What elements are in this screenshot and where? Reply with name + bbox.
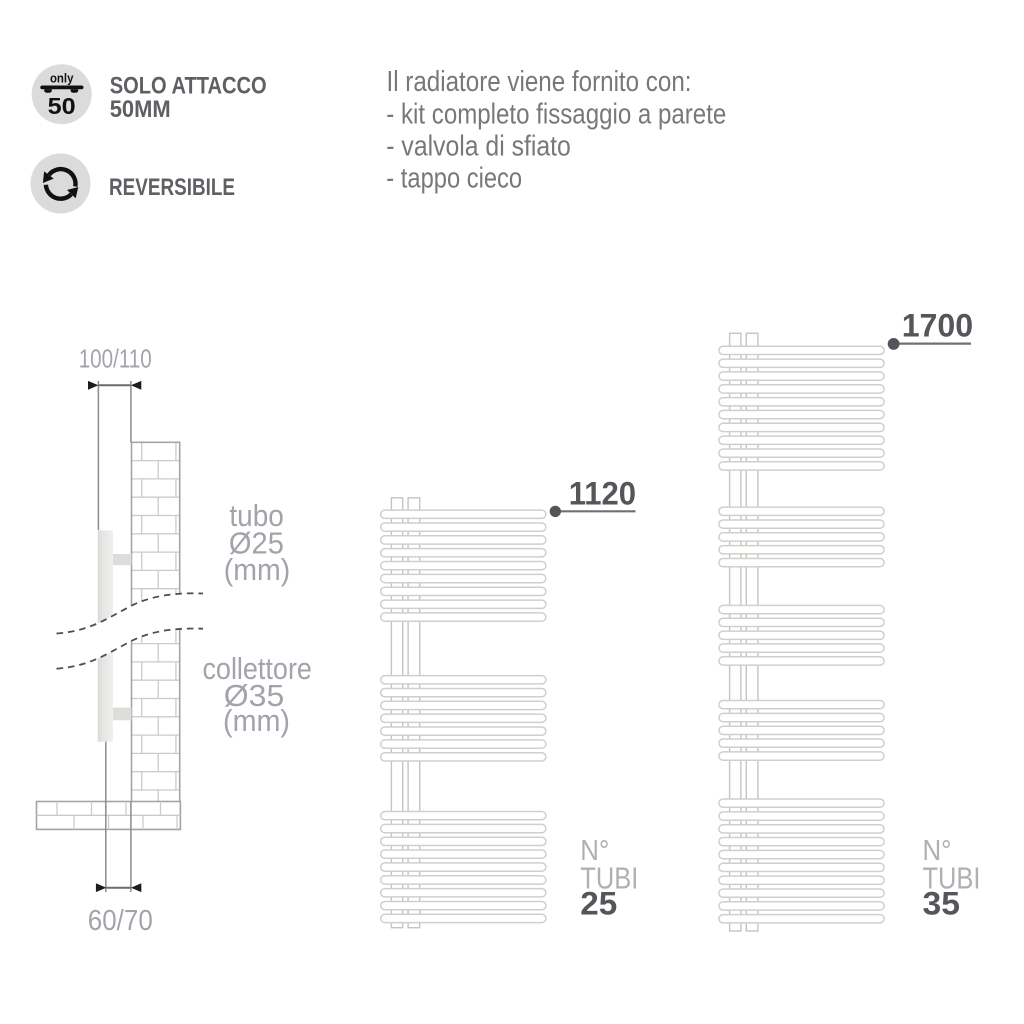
svg-text:(mm): (mm) <box>224 553 291 587</box>
svg-text:35: 35 <box>923 886 961 922</box>
svg-text:60/70: 60/70 <box>88 905 153 937</box>
svg-text:Il radiatore viene fornito con: Il radiatore viene fornito con: <box>387 65 692 97</box>
svg-text:(mm): (mm) <box>223 704 290 738</box>
svg-text:- tappo cieco: - tappo cieco <box>386 162 522 194</box>
svg-text:50: 50 <box>48 93 76 119</box>
svg-text:50MM: 50MM <box>110 96 171 123</box>
svg-text:- valvola di sfiato: - valvola di sfiato <box>386 130 571 162</box>
svg-text:- kit completo fissaggio a par: - kit completo fissaggio a parete <box>386 97 726 129</box>
svg-text:REVERSIBILE: REVERSIBILE <box>109 174 235 201</box>
svg-text:1120: 1120 <box>569 476 636 512</box>
svg-text:only: only <box>50 72 74 86</box>
svg-text:1700: 1700 <box>902 307 974 343</box>
svg-text:25: 25 <box>580 886 617 922</box>
svg-text:100/110: 100/110 <box>79 346 152 374</box>
